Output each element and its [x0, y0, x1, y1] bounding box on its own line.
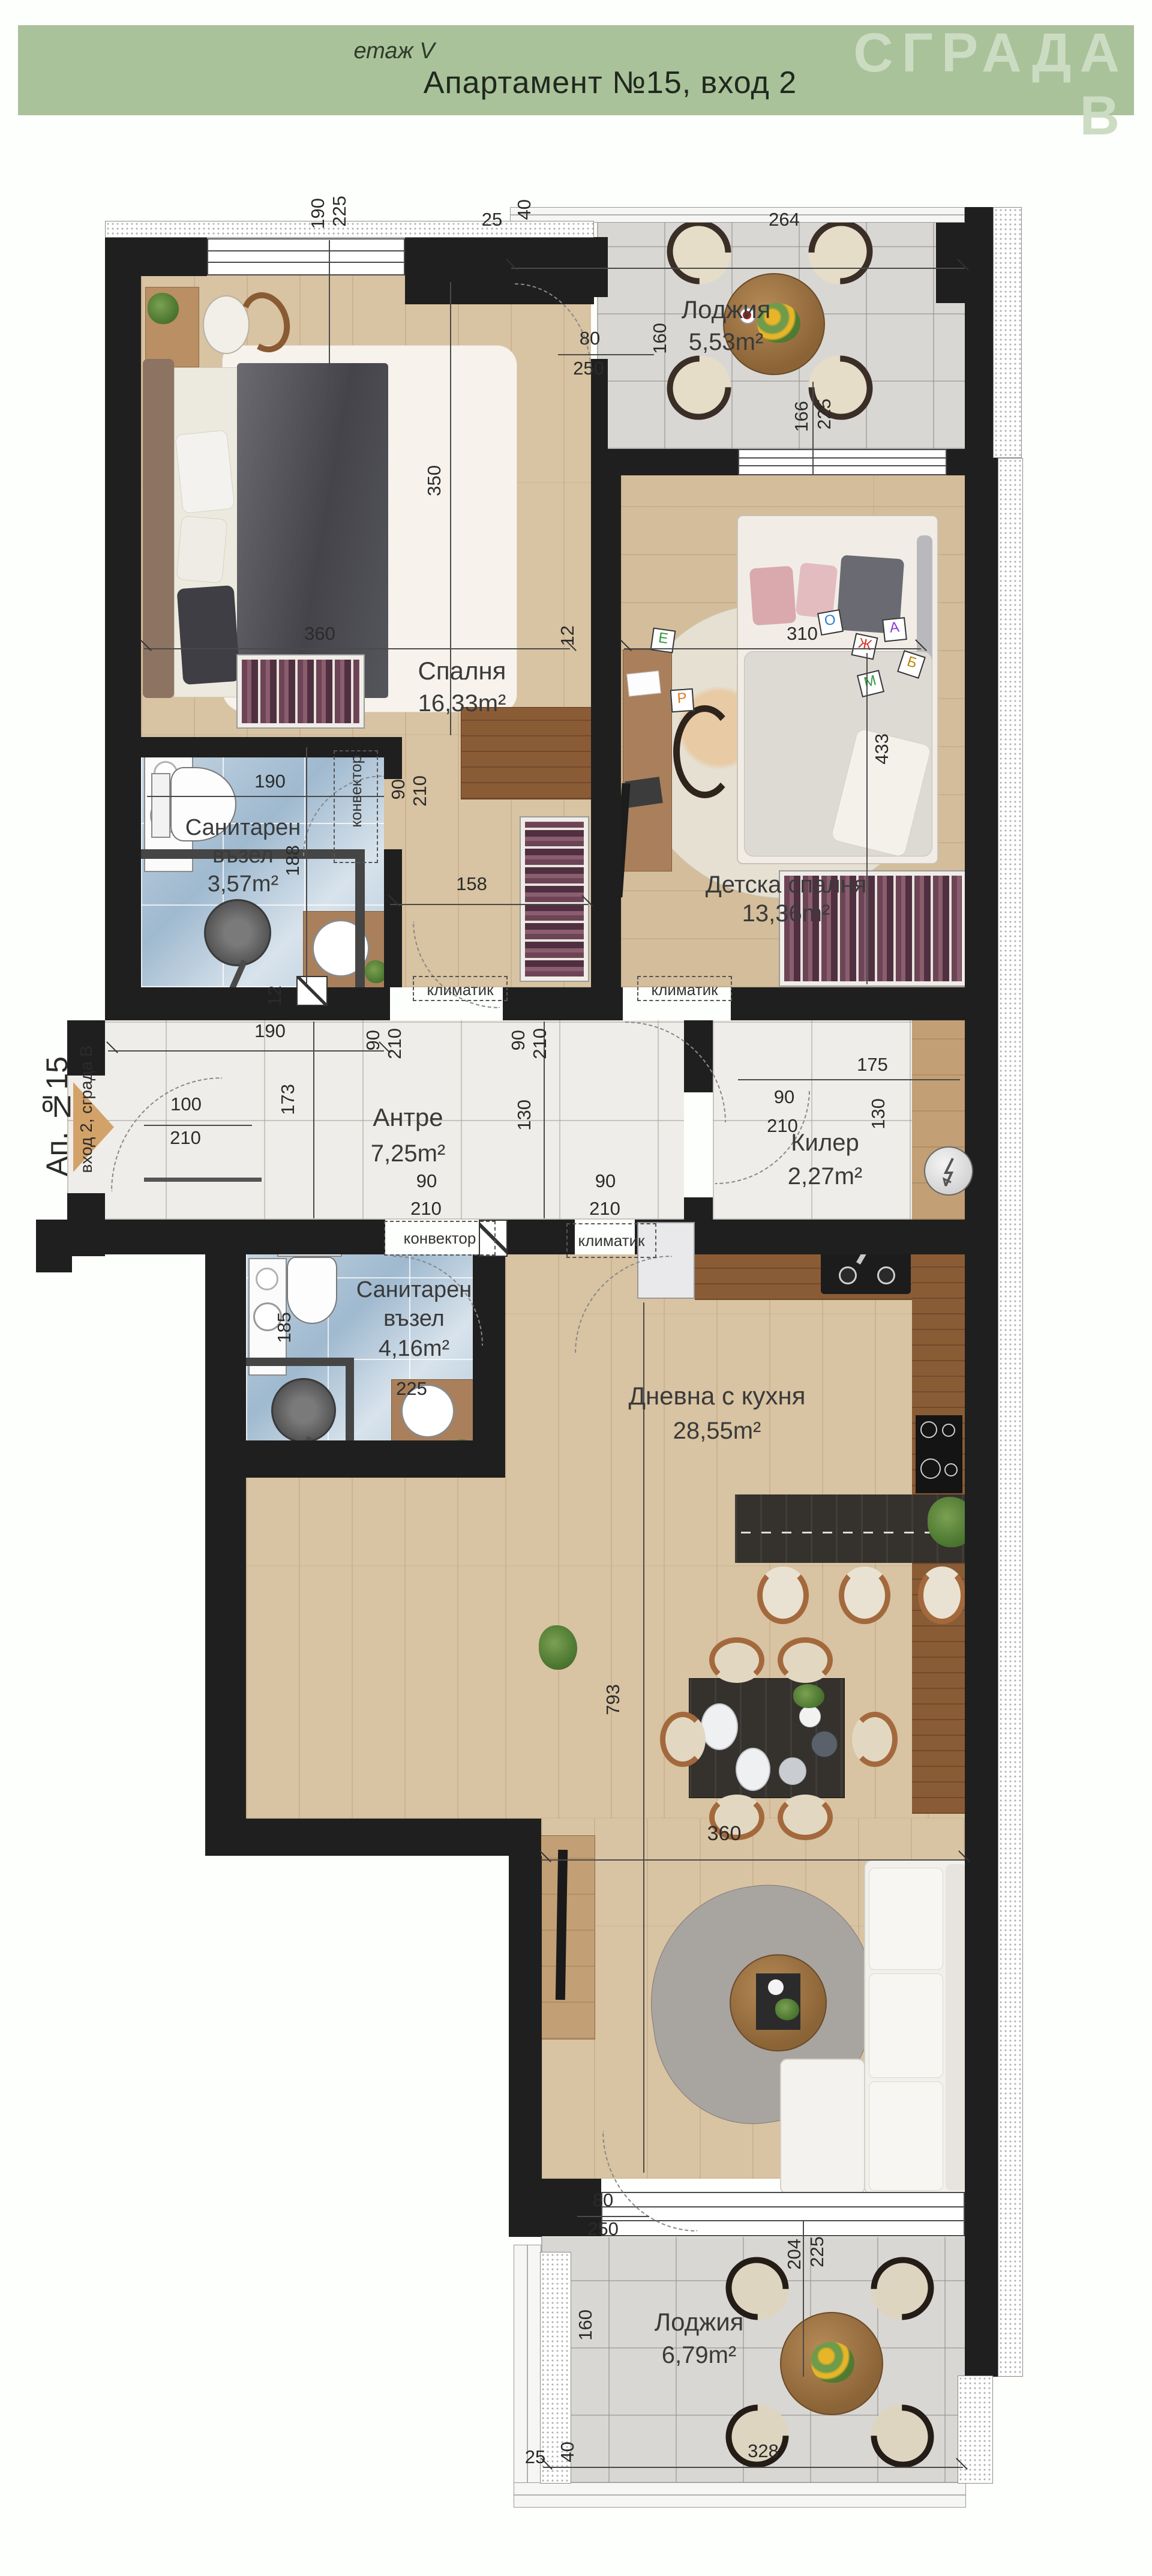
dim-label: 130	[868, 1098, 889, 1130]
bar-stool	[757, 1566, 809, 1624]
electric-shaft-circle	[924, 1146, 973, 1196]
dim-line	[543, 2467, 963, 2468]
shower-head	[204, 899, 271, 966]
wall	[67, 1220, 385, 1254]
bar-stool	[839, 1566, 890, 1624]
vanity-plant	[148, 293, 179, 324]
dinner-plate	[701, 1703, 738, 1750]
dim-label: 210	[529, 1028, 551, 1059]
dim-line	[313, 1022, 314, 1218]
bedroom-wardrobe	[238, 655, 364, 727]
dim-label: 204	[784, 2239, 805, 2270]
dim-label: 190	[241, 771, 299, 792]
room-area-bedroom: 16,33m²	[384, 690, 540, 717]
dim-label: 328	[733, 2440, 793, 2462]
dim-label: 225	[384, 1378, 439, 1400]
toy-block: Е	[650, 628, 676, 654]
floor-plan-page: етаж V Апартамент №15, вход 2 СГРАДА В О…	[0, 0, 1152, 2576]
dim-label: 210	[384, 1028, 406, 1059]
wall	[591, 450, 621, 987]
wall	[591, 237, 608, 297]
dining-chair	[778, 1637, 833, 1683]
building-label: СГРАДА В	[786, 22, 1128, 148]
tray-plant	[775, 1999, 799, 2020]
dim-label: 175	[845, 1054, 900, 1076]
dim-label: 250	[577, 2218, 629, 2240]
room-name-kids: Детска спалня	[696, 871, 876, 898]
vase	[768, 1979, 784, 1995]
wall	[36, 1220, 72, 1272]
bath2-partition-h	[246, 1358, 354, 1366]
convector-label: конвектор	[347, 755, 365, 828]
bedroom-dresser	[461, 707, 593, 799]
dim-label: 80	[569, 328, 611, 349]
dim-label: 160	[575, 2310, 596, 2341]
toy-block: Ж	[851, 633, 878, 660]
ac-label-3: климатик	[570, 1232, 653, 1250]
dim-line	[558, 354, 654, 355]
sink-drain-right	[877, 1266, 895, 1284]
washer2-dial	[256, 1268, 278, 1290]
cooktop-ring	[920, 1458, 941, 1479]
dim-label: 210	[577, 1198, 632, 1220]
kids-chair	[673, 705, 736, 798]
sofa-cushion	[869, 1868, 943, 1970]
header-banner: етаж V Апартамент №15, вход 2 СГРАДА В	[18, 25, 1134, 115]
dim-line	[624, 648, 921, 649]
dim-label: 185	[274, 1312, 295, 1343]
sofa-ottoman	[780, 2059, 865, 2194]
dim-line	[144, 1125, 252, 1126]
wall	[965, 456, 998, 2237]
dim-line	[144, 648, 570, 649]
bed-pillow-dark	[177, 585, 241, 685]
wall	[405, 237, 594, 304]
room-name-loggia-top: Лоджия	[648, 295, 804, 324]
loggia2-flowers	[811, 2342, 854, 2383]
dim-line	[511, 268, 965, 269]
dim-label: 433	[871, 733, 893, 765]
dim-label: 160	[649, 323, 671, 354]
dining-chair	[709, 1637, 764, 1683]
dinner-plate-gray	[779, 1757, 806, 1785]
dim-label: 130	[514, 1100, 535, 1131]
ac-label-1: климатик	[416, 981, 504, 999]
insulation-hatch	[998, 458, 1023, 2377]
wall	[384, 737, 402, 779]
dim-label: 90	[584, 1170, 626, 1192]
wall	[205, 1440, 505, 1478]
floor-plant	[539, 1625, 577, 1670]
room-area-loggia-top: 5,53m²	[648, 329, 804, 356]
bedroom-window	[207, 238, 405, 275]
dim-label: 210	[398, 1198, 454, 1220]
vent-shaft	[296, 976, 328, 1006]
wall	[205, 1476, 246, 1856]
room-name-bath2-line1: Санитарен	[339, 1277, 489, 1303]
room-area-kids: 13,36m²	[696, 900, 876, 927]
cooktop-ring	[920, 1421, 937, 1438]
dim-label: 264	[751, 209, 817, 230]
dim-label: 360	[287, 623, 353, 645]
room-name-loggia-bottom: Лоджия	[621, 2308, 777, 2337]
wall	[105, 237, 141, 996]
dim-label: 40	[514, 199, 535, 220]
dim-line	[390, 904, 588, 905]
wall	[965, 2237, 998, 2377]
bed-pillow-white	[175, 430, 235, 514]
sink-drain-left	[839, 1266, 857, 1284]
dim-line	[577, 2216, 649, 2217]
sofa-cushion	[869, 1973, 943, 2078]
table-flowers	[793, 1684, 824, 1708]
room-area-hall: 7,25m²	[348, 1140, 468, 1167]
bar-counter-seam	[741, 1532, 959, 1533]
kids-desk-papers	[626, 670, 661, 696]
dim-label: 190	[241, 1020, 299, 1042]
room-name-living: Дневна с кухня	[603, 1382, 831, 1410]
dim-label: 90	[388, 779, 409, 799]
wall	[503, 987, 623, 1020]
electric-symbol-icon	[925, 1148, 974, 1197]
dim-label: 225	[329, 196, 350, 227]
dim-label: 12	[264, 986, 286, 1006]
wall	[498, 1220, 575, 1254]
bar-stool	[918, 1566, 966, 1624]
insulation-hatch	[993, 207, 1022, 458]
dim-label: 25	[517, 2446, 553, 2468]
dim-label: 225	[814, 399, 835, 430]
living-floor-left	[246, 1478, 505, 1819]
dim-label: 90	[406, 1170, 448, 1192]
page-title: Апартамент №15, вход 2	[370, 65, 850, 101]
room-name-hall: Антре	[348, 1103, 468, 1132]
wall	[384, 849, 402, 987]
kids-pillow-pink	[749, 566, 796, 626]
dim-label: 173	[277, 1084, 299, 1115]
convector-label-2: конвектор	[389, 1229, 491, 1248]
dim-label: 350	[424, 465, 445, 496]
wall	[105, 987, 390, 1020]
apartment-label: Ап. №15	[40, 1056, 74, 1176]
wall	[731, 987, 966, 1020]
room-name-bedroom: Спалня	[384, 657, 540, 685]
sofa-cushion	[869, 2081, 943, 2191]
dim-label: 360	[691, 1822, 757, 1846]
dim-label: 166	[791, 401, 812, 432]
dim-label: 12	[557, 625, 578, 646]
room-area-loggia-bottom: 6,79m²	[621, 2342, 777, 2369]
room-name-bath1-line1: Санитарен	[168, 815, 318, 841]
bath1-partition-v	[355, 849, 365, 987]
entrance-door-leaf	[144, 1178, 262, 1182]
hall-wardrobe	[521, 817, 588, 981]
room-name-bath2-line2: възел	[339, 1306, 489, 1332]
dinner-plate	[736, 1748, 770, 1791]
floor-label: етаж V	[298, 38, 490, 64]
dim-label: 793	[602, 1684, 624, 1715]
room-area-living: 28,55m²	[603, 1418, 831, 1445]
room-area-storage: 2,27m²	[774, 1163, 876, 1190]
dim-label: 40	[557, 2442, 578, 2462]
dinner-plate-dark	[811, 1731, 838, 1757]
dim-line	[329, 240, 330, 414]
dim-line	[108, 1050, 384, 1052]
dim-label: 190	[307, 198, 329, 229]
dim-label: 210	[154, 1127, 217, 1149]
bed-pillow-white2	[176, 516, 227, 583]
dim-label: 90	[362, 1030, 384, 1050]
dim-label: 210	[755, 1115, 810, 1137]
cooktop-ring	[944, 1463, 958, 1476]
dining-chair	[852, 1712, 898, 1767]
dim-label: 225	[806, 2236, 828, 2268]
dim-label: 90	[508, 1030, 529, 1050]
loggia2-parapet-bottom	[514, 2482, 966, 2508]
wall	[105, 237, 207, 276]
dim-label: 100	[157, 1094, 215, 1115]
dining-chair	[660, 1712, 706, 1767]
dim-label: 310	[769, 623, 835, 645]
wall	[947, 449, 966, 475]
dining-chair	[778, 1795, 833, 1840]
dim-label: 80	[583, 2189, 623, 2211]
wall	[205, 1819, 541, 1856]
sofa-back-cushions	[946, 1864, 967, 2191]
wall	[684, 1197, 713, 1221]
dinner-bowl	[799, 1706, 821, 1727]
dim-label: 210	[409, 775, 431, 807]
room-area-bath2: 4,16m²	[339, 1336, 489, 1362]
kids-loggia-window	[738, 449, 947, 475]
dim-label: 158	[443, 873, 500, 895]
dim-label: 25	[474, 209, 510, 230]
toy-block: Р	[670, 688, 695, 713]
dim-label: 188	[282, 845, 304, 876]
apartment-sublabel: вход 2, сграда В	[77, 1046, 96, 1173]
dim-line	[541, 1859, 965, 1861]
shower2-head	[271, 1378, 336, 1443]
ac-label-2: климатик	[641, 981, 728, 999]
dim-label: 250	[563, 358, 614, 379]
toy-block: А	[882, 617, 907, 642]
dim-line	[866, 653, 868, 984]
dim-label: 90	[763, 1086, 805, 1108]
dim-line	[738, 1079, 960, 1080]
kids-laptop	[625, 777, 663, 808]
cooktop-ring	[942, 1424, 955, 1437]
